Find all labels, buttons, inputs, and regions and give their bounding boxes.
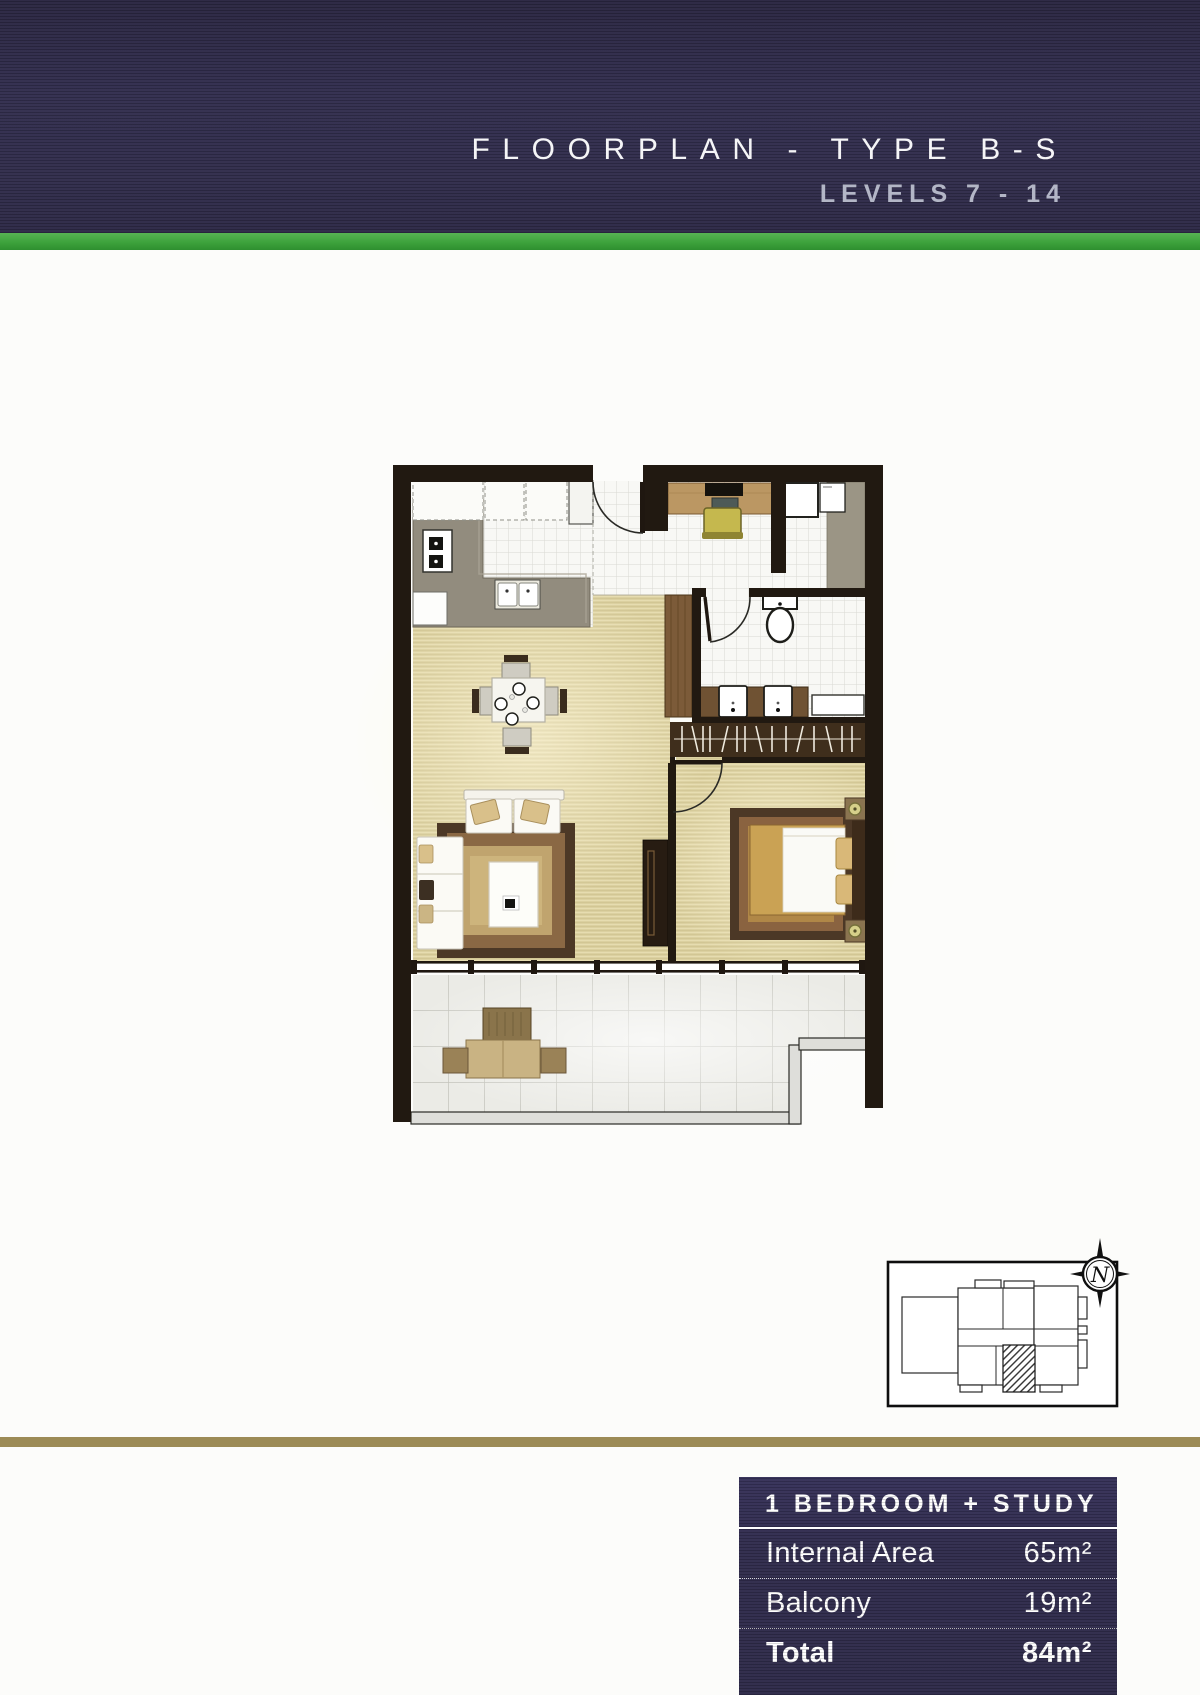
divider-wall [668, 763, 676, 962]
plate [513, 683, 525, 695]
sofa-pillow [419, 905, 433, 923]
plate [527, 697, 539, 709]
bedroom-door-leaf [673, 760, 722, 765]
vanity-basin [719, 686, 747, 717]
plate [495, 698, 507, 710]
page-title: FLOORPLAN - TYPE B-S [471, 133, 1068, 167]
outdoor-stool [443, 1048, 468, 1073]
coffee-table [489, 862, 538, 927]
plate [506, 713, 518, 725]
remote [505, 899, 515, 908]
area-value: 84m² [1022, 1637, 1092, 1670]
dining-chair [560, 689, 567, 713]
area-value: 65m² [1024, 1537, 1092, 1570]
highlighted-unit [1003, 1345, 1035, 1392]
toilet-bowl [767, 608, 793, 642]
entry-door-leaf [640, 482, 645, 533]
key-plan: N [888, 1238, 1130, 1406]
area-label: Internal Area [766, 1537, 934, 1570]
page-subtitle: LEVELS 7 - 14 [820, 180, 1066, 209]
dining-chair [505, 747, 529, 754]
shower-base [812, 695, 864, 715]
fridge [569, 481, 593, 524]
wardrobe-wall [722, 757, 865, 763]
wardrobe [670, 722, 865, 757]
wall [393, 465, 411, 1122]
sofa-pillow [419, 880, 434, 900]
bathroom-wall [692, 717, 865, 723]
study-chair-back [702, 532, 743, 539]
dining-chair [472, 689, 479, 713]
sofa-pillow [419, 845, 433, 863]
wall-stub [771, 482, 786, 573]
area-value: 19m² [1024, 1587, 1092, 1620]
tv-unit [643, 840, 668, 946]
dishwasher [413, 592, 447, 625]
unit-type-heading: 1 BEDROOM + STUDY [739, 1477, 1117, 1529]
wall [643, 465, 883, 482]
bedroom [730, 798, 866, 942]
wall [865, 465, 883, 1108]
wall [393, 465, 593, 482]
kitchen-cabinet [485, 481, 524, 520]
washing-machine [783, 483, 818, 517]
bathroom-wall [749, 588, 865, 597]
outdoor-stool [541, 1048, 566, 1073]
dining-chair [504, 655, 528, 662]
gold-divider-stripe [0, 1437, 1200, 1447]
wall-stub [645, 482, 668, 531]
table-row: Internal Area 65m² [739, 1529, 1117, 1579]
kitchen-cabinet [413, 481, 483, 520]
window-wall [411, 960, 867, 974]
brochure-page: FLOORPLAN - TYPE B-S LEVELS 7 - 14 [0, 0, 1200, 1695]
area-label: Total [766, 1637, 835, 1670]
desk-monitor [705, 483, 743, 496]
vanity-basin [764, 686, 792, 717]
compass-north-label: N [1090, 1263, 1110, 1287]
table-row: Balcony 19m² [739, 1579, 1117, 1629]
outdoor-planter [483, 1008, 531, 1040]
table-row-total: Total 84m² [739, 1629, 1117, 1678]
area-label: Balcony [766, 1587, 871, 1620]
bathroom-wall [692, 595, 701, 722]
unit-info-table: 1 BEDROOM + STUDY Internal Area 65m² Bal… [739, 1477, 1117, 1695]
bed-headboard [852, 820, 865, 920]
kitchen-cabinet [526, 481, 567, 520]
study-chair [704, 508, 741, 535]
